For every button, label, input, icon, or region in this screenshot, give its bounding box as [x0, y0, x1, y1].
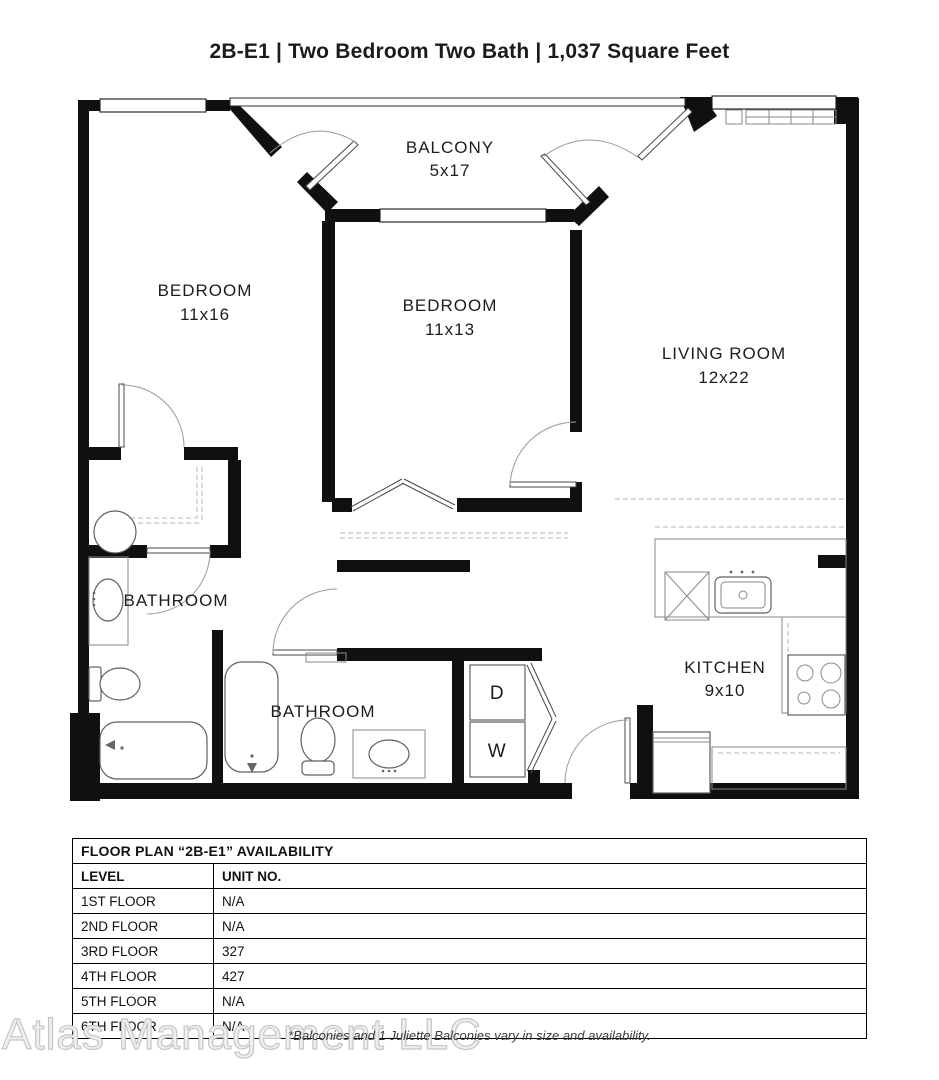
cell-unit: 427	[214, 964, 867, 989]
room-dims-bedroom-2: 11x13	[425, 320, 475, 339]
availability-title: FLOOR PLAN “2B-E1” AVAILABILITY	[73, 839, 867, 864]
footnote: *Balconies and 1 Juliette Balconies vary…	[0, 1028, 939, 1043]
bedroom2-door	[510, 482, 576, 487]
room-dims-bedroom-1: 11x16	[180, 305, 230, 324]
toilet-2-bowl	[301, 718, 335, 762]
balcony-door-right-leaf2	[541, 154, 590, 205]
room-label-bedroom-2: BEDROOM	[403, 296, 498, 315]
room-label-bathroom-1: BATHROOM	[124, 591, 229, 610]
room-label-bathroom-2: BATHROOM	[271, 702, 376, 721]
kitchen-sink	[715, 571, 771, 613]
table-row: 3RD FLOOR 327	[73, 939, 867, 964]
ac-unit	[726, 110, 836, 124]
table-row: 1ST FLOOR N/A	[73, 889, 867, 914]
interior-walls	[89, 221, 653, 785]
dishwasher	[665, 572, 709, 620]
sink-2	[369, 740, 409, 768]
balcony-door-left	[306, 141, 358, 190]
bathtub-1	[100, 722, 207, 779]
bedroom2-closet-bifold	[351, 479, 455, 511]
bedroom2-window	[380, 209, 546, 222]
stove	[788, 655, 845, 715]
balcony-rail	[230, 98, 685, 106]
bedroom1-window	[100, 99, 206, 112]
table-row: 2ND FLOOR N/A	[73, 914, 867, 939]
table-row: 4TH FLOOR 427	[73, 964, 867, 989]
bathroom1-door	[147, 548, 210, 553]
page-title: 2B-E1 | Two Bedroom Two Bath | 1,037 Squ…	[0, 40, 939, 64]
availability-header-row: LEVEL UNIT NO.	[73, 864, 867, 889]
entry-door	[625, 718, 630, 783]
floor-plan: BALCONY 5x17 BEDROOM 11x16 BEDROOM 11x13…	[70, 95, 870, 805]
laundry-bifold	[527, 663, 556, 773]
cell-level: 2ND FLOOR	[73, 914, 214, 939]
cell-level: 3RD FLOOR	[73, 939, 214, 964]
room-dims-kitchen: 9x10	[705, 681, 746, 700]
room-label-balcony: BALCONY	[406, 138, 494, 157]
availability-title-row: FLOOR PLAN “2B-E1” AVAILABILITY	[73, 839, 867, 864]
flyer-page: 2B-E1 | Two Bedroom Two Bath | 1,037 Squ…	[0, 0, 939, 1080]
cell-unit: 327	[214, 939, 867, 964]
room-label-kitchen: KITCHEN	[684, 658, 766, 677]
washer-label: W	[488, 741, 506, 762]
cell-level: 4TH FLOOR	[73, 964, 214, 989]
room-dims-living-room: 12x22	[698, 368, 749, 387]
floor-plan-drawing: BALCONY 5x17 BEDROOM 11x16 BEDROOM 11x13…	[70, 95, 870, 805]
balcony-door-right-leaf1	[638, 108, 692, 160]
col-header-unit: UNIT NO.	[214, 864, 867, 889]
toilet-1-tank	[89, 667, 101, 701]
living-room-window	[712, 96, 836, 109]
toilet-2-tank	[302, 761, 334, 775]
cell-unit: N/A	[214, 914, 867, 939]
refrigerator	[653, 732, 710, 793]
cell-level: 1ST FLOOR	[73, 889, 214, 914]
dryer-label: D	[490, 683, 504, 704]
cell-unit: N/A	[214, 889, 867, 914]
toilet-1-bowl	[100, 668, 140, 700]
col-header-level: LEVEL	[73, 864, 214, 889]
room-label-living-room: LIVING ROOM	[662, 344, 786, 363]
sink-1	[93, 579, 123, 621]
closet-stool	[94, 511, 136, 553]
room-label-bedroom-1: BEDROOM	[158, 281, 253, 300]
availability-table: FLOOR PLAN “2B-E1” AVAILABILITY LEVEL UN…	[72, 838, 867, 1039]
bedroom1-door	[119, 384, 124, 447]
room-dims-balcony: 5x17	[430, 161, 471, 180]
